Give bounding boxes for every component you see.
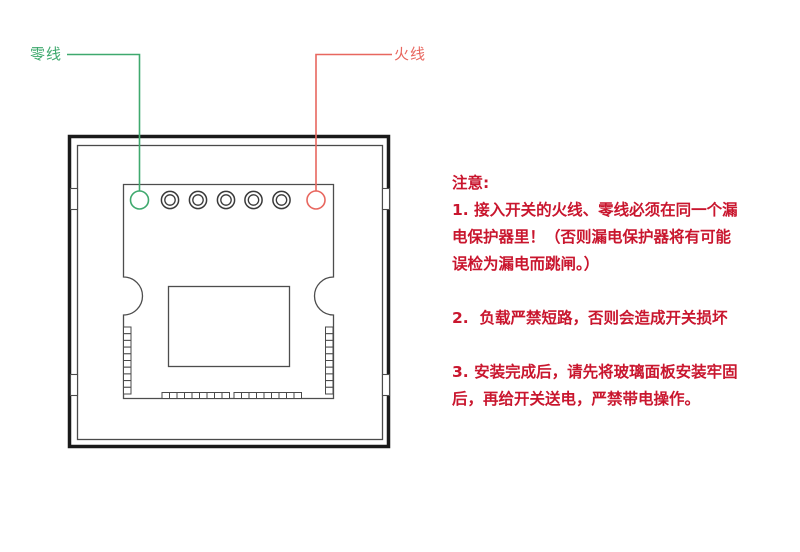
relay-box [169,287,290,367]
note-line: 后，再给开关送电，严禁带电操作。 [452,386,792,413]
switch-wiring-instruction-figure: 零线 火线 注意: 1. 接入开关的火线、零线必须在同一个漏 电保护器里！（否则… [0,0,800,552]
live-wire-label: 火线 [394,46,426,63]
mounting-tab-right-bottom [383,375,390,396]
mounting-tab-left-top [71,189,78,210]
bottom-pin-row-left [162,393,230,399]
note-line: 2. 负载严禁短路，否则会造成开关损坏 [452,305,792,332]
note-line [452,332,792,359]
note-line: 电保护器里！（否则漏电保护器将有可能 [452,224,792,251]
bottom-pin-row-right [234,393,302,399]
neutral-wire-label: 零线 [30,46,62,63]
notes-block: 注意: 1. 接入开关的火线、零线必须在同一个漏 电保护器里！（否则漏电保护器将… [452,170,792,413]
mounting-tab-left-bottom [71,375,78,396]
note-line: 1. 接入开关的火线、零线必须在同一个漏 [452,197,792,224]
note-line: 3. 安装完成后，请先将玻璃面板安装牢固 [452,359,792,386]
mounting-tab-right-top [383,189,390,210]
note-line: 误检为漏电而跳闸。） [452,251,792,278]
neutral-terminal [131,191,149,209]
left-fin-strip [124,327,132,394]
note-line [452,278,792,305]
right-fin-strip [326,327,334,394]
notes-title: 注意: [452,170,792,197]
live-terminal [307,191,325,209]
